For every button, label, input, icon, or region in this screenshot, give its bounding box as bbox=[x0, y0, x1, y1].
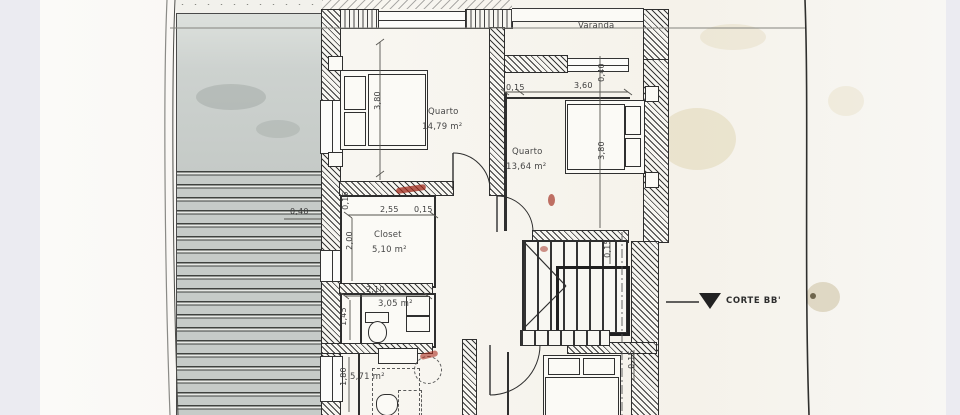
backdrop-right bbox=[946, 0, 960, 415]
slab-smudge bbox=[196, 84, 266, 110]
stippled-ground bbox=[176, 0, 322, 13]
dim-q2-offset: 0,40 bbox=[597, 63, 606, 82]
bathroom-cabinet bbox=[406, 316, 430, 332]
dim-room-bottom-depth: 1,80 bbox=[339, 367, 348, 386]
paper-stain bbox=[828, 86, 864, 116]
dim-closet-width: 2,55 bbox=[380, 205, 399, 214]
room-label-closet: Closet bbox=[374, 231, 402, 240]
dim-bath-depth: 1,45 bbox=[339, 307, 348, 326]
toilet-bowl bbox=[368, 321, 387, 343]
nightstand bbox=[645, 86, 659, 102]
paper-stain bbox=[658, 108, 736, 170]
wall-quarto2-top bbox=[507, 97, 630, 99]
window-glass-line bbox=[379, 20, 467, 21]
staircase-railing bbox=[556, 266, 630, 336]
nightstand bbox=[645, 172, 659, 188]
dim-closet-depth: 2,00 bbox=[345, 231, 354, 250]
nightstand bbox=[328, 56, 343, 71]
wall-under-closet bbox=[340, 284, 432, 293]
varanda-parapet bbox=[512, 8, 644, 22]
nightstand bbox=[328, 152, 343, 167]
wall-room-bottom-divider bbox=[358, 353, 360, 415]
dim-stair-wall: 0,15 bbox=[603, 239, 612, 258]
dim-q2-wall-top: 0,15 bbox=[506, 83, 525, 92]
wall-bedroom3-left bbox=[507, 352, 509, 415]
room-area-room-bottom: 5,71 m² bbox=[350, 373, 385, 382]
washbasin bbox=[378, 348, 418, 364]
wall-between-quartos bbox=[490, 28, 504, 195]
window-glass-line bbox=[332, 357, 333, 401]
room-area-quarto2: 13,64 m² bbox=[506, 163, 546, 172]
wall-right-lower bbox=[632, 242, 658, 415]
dim-roof-offset: 0,40 bbox=[290, 207, 309, 216]
slab-smudge bbox=[256, 120, 300, 138]
floor-plan-scan: Varanda Quarto 14,79 m² Quarto 13,64 m² … bbox=[0, 0, 960, 415]
bed-pillow bbox=[625, 106, 641, 135]
red-mark bbox=[540, 246, 548, 252]
room-label-quarto2: Quarto bbox=[512, 148, 543, 157]
bed-pillow bbox=[344, 112, 366, 146]
chair-dashed bbox=[414, 356, 442, 384]
paper-stain bbox=[700, 24, 766, 50]
pedestal-sink bbox=[376, 394, 398, 415]
red-mark bbox=[548, 194, 555, 206]
bed-pillow bbox=[344, 76, 366, 110]
bed-pillow bbox=[583, 358, 615, 375]
dim-closet-wall-v: 0,15 bbox=[341, 191, 350, 210]
dim-closet-wall-h: 0,15 bbox=[414, 205, 433, 214]
staircase-lower-run bbox=[520, 330, 610, 346]
dim-q2-depth: 3,80 bbox=[597, 141, 606, 160]
dim-q1-depth: 3,80 bbox=[373, 91, 382, 110]
section-marker-label: CORTE BB' bbox=[726, 296, 781, 306]
window-glass-line bbox=[332, 251, 333, 281]
wall-hall-stub bbox=[463, 340, 476, 415]
boundary-hatch-top bbox=[322, 0, 512, 9]
backdrop-left bbox=[0, 0, 40, 415]
wall-corner-top-right bbox=[644, 10, 668, 62]
dim-bedroom3-wall: 0,15 bbox=[627, 350, 636, 369]
bed-mattress bbox=[567, 104, 625, 170]
room-area-bathroom: 3,05 m² bbox=[378, 300, 413, 309]
ink-dot bbox=[810, 293, 816, 299]
dim-bath-width: 2,10 bbox=[366, 285, 385, 294]
room-label-varanda: Varanda bbox=[578, 22, 614, 31]
bed-pillow bbox=[548, 358, 580, 375]
room-label-quarto1: Quarto bbox=[428, 108, 459, 117]
bed-pillow bbox=[625, 138, 641, 167]
bathroom-divider bbox=[360, 295, 362, 344]
varanda-wall bbox=[505, 56, 567, 72]
bed-mattress bbox=[368, 74, 426, 146]
wall-top-right bbox=[466, 10, 512, 28]
bed-mattress bbox=[545, 377, 619, 415]
dim-q2-width: 3,60 bbox=[574, 81, 593, 90]
window-top bbox=[378, 11, 468, 29]
room-area-closet: 5,10 m² bbox=[372, 246, 407, 255]
window-glass-line bbox=[332, 101, 333, 153]
cabinet-dashed bbox=[398, 390, 422, 415]
room-area-quarto1: 14,79 m² bbox=[422, 123, 462, 132]
